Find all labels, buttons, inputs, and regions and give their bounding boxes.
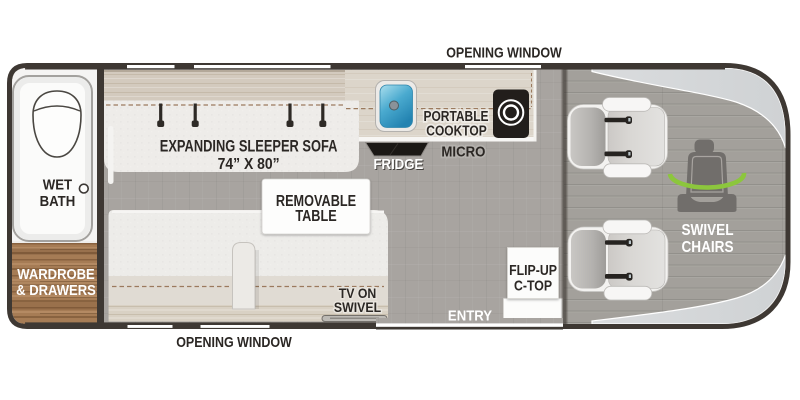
svg-text:SWIVEL: SWIVEL [681,222,733,239]
svg-text:OPENING WINDOW: OPENING WINDOW [176,334,292,350]
svg-text:WET: WET [43,176,73,193]
svg-text:CHAIRS: CHAIRS [681,239,733,256]
svg-text:BATH: BATH [40,192,76,209]
svg-text:C-TOP: C-TOP [514,278,552,294]
svg-text:OPENING WINDOW: OPENING WINDOW [446,45,562,61]
svg-text:FRIDGE: FRIDGE [373,155,423,172]
svg-text:TABLE: TABLE [295,208,336,225]
svg-text:74” X 80”: 74” X 80” [218,156,280,173]
svg-text:WARDROBE: WARDROBE [17,266,95,282]
svg-text:ENTRY: ENTRY [448,307,493,324]
svg-text:EXPANDING SLEEPER SOFA: EXPANDING SLEEPER SOFA [160,138,338,156]
svg-text:SWIVEL: SWIVEL [334,299,381,315]
svg-text:MICRO: MICRO [441,143,485,160]
svg-text:& DRAWERS: & DRAWERS [16,282,96,298]
svg-text:FLIP-UP: FLIP-UP [509,262,557,278]
svg-text:COOKTOP: COOKTOP [426,122,486,139]
